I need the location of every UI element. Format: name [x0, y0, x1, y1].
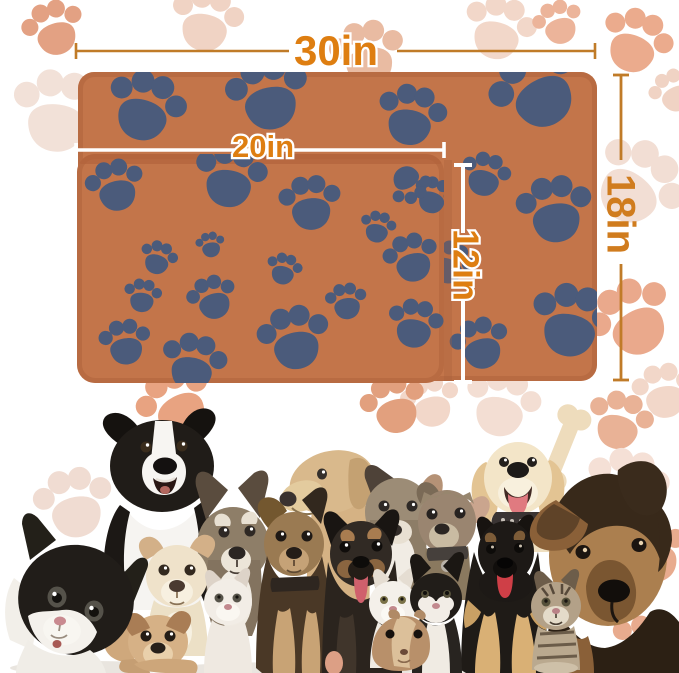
- svg-text:20in: 20in: [232, 129, 294, 164]
- svg-text:18in: 18in: [598, 174, 642, 254]
- svg-text:12in: 12in: [445, 229, 486, 301]
- svg-text:30in: 30in: [294, 27, 378, 74]
